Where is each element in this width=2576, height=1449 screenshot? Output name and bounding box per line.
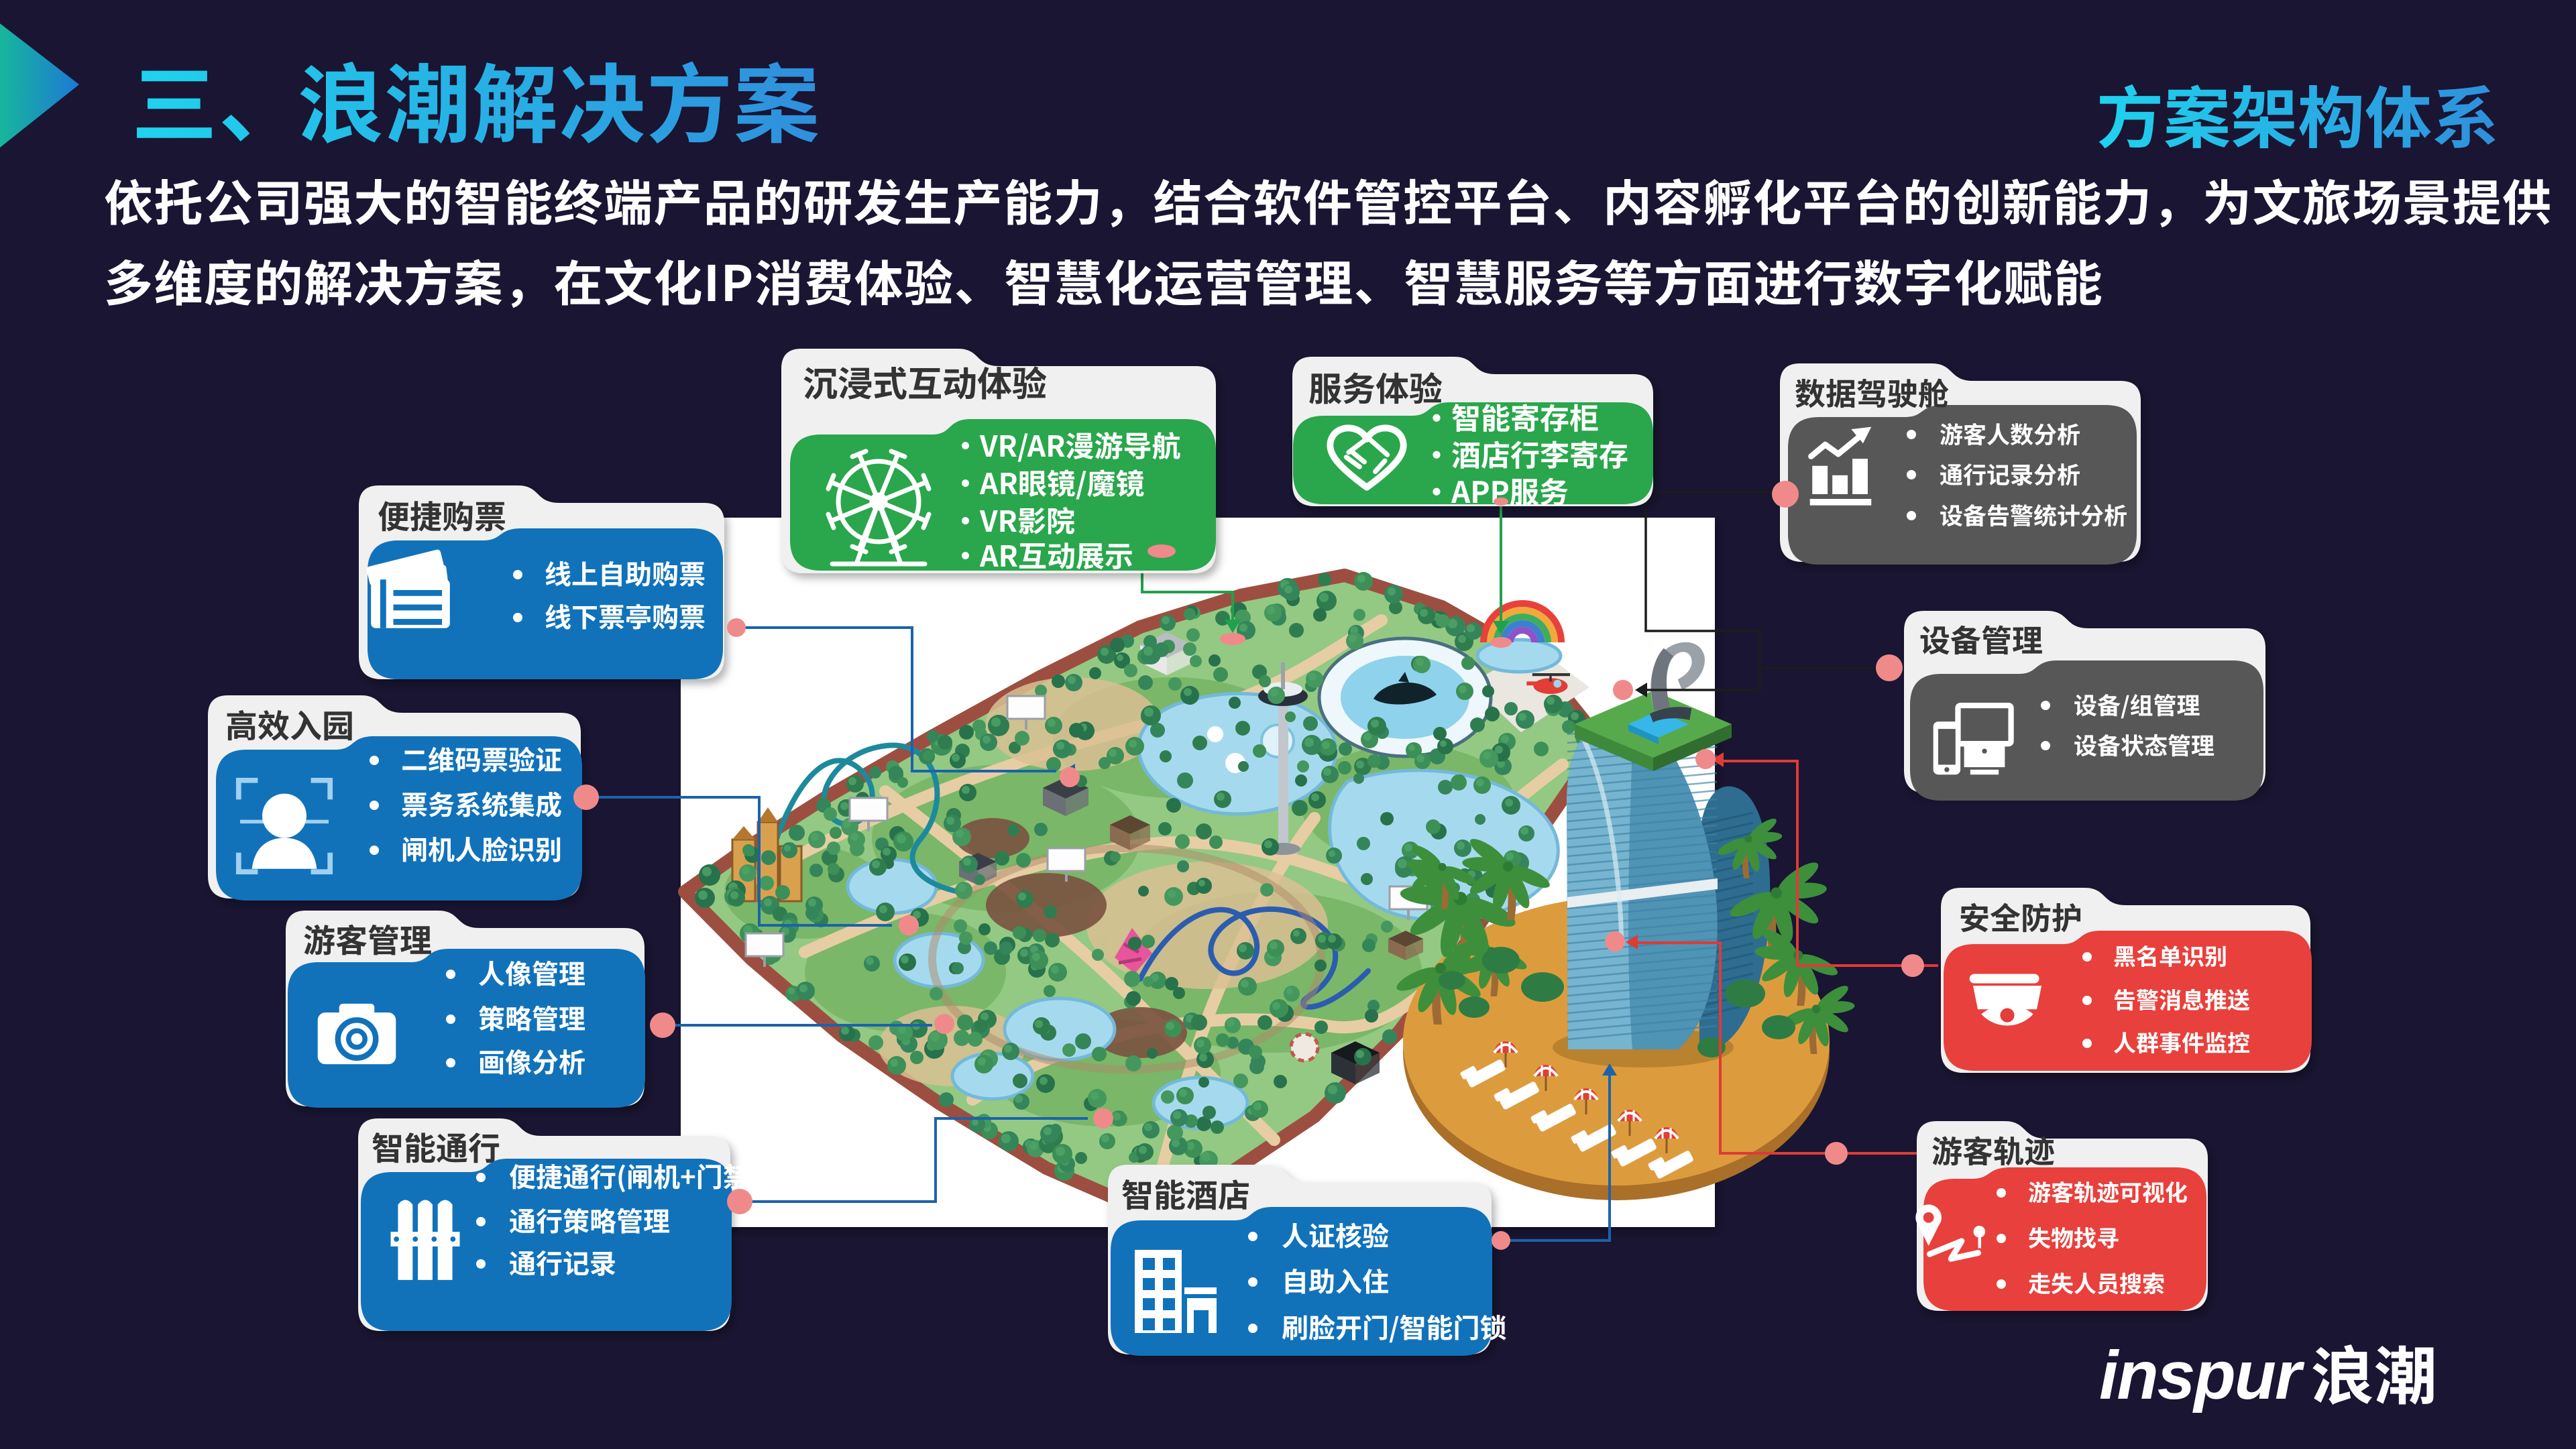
svg-text:线下票亭购票: 线下票亭购票 bbox=[545, 596, 706, 635]
svg-text:人像管理: 人像管理 bbox=[478, 953, 585, 992]
svg-text:沉浸式互动体验: 沉浸式互动体验 bbox=[803, 356, 1047, 406]
svg-text:·APP服务: ·APP服务 bbox=[1422, 469, 1569, 512]
svg-text:刷脸开门/智能门锁: 刷脸开门/智能门锁 bbox=[1282, 1307, 1506, 1346]
svg-text:人群事件监控: 人群事件监控 bbox=[2113, 1025, 2250, 1058]
svg-text:票务系统集成: 票务系统集成 bbox=[401, 784, 562, 823]
svg-text:通行记录: 通行记录 bbox=[509, 1242, 616, 1281]
svg-text:告警消息推送: 告警消息推送 bbox=[2113, 982, 2250, 1015]
svg-text:策略管理: 策略管理 bbox=[478, 998, 585, 1037]
svg-text:便捷购票: 便捷购票 bbox=[378, 491, 506, 538]
svg-text:高效入园: 高效入园 bbox=[225, 700, 354, 747]
svg-text:游客管理: 游客管理 bbox=[303, 915, 432, 962]
svg-text:智能通行: 智能通行 bbox=[372, 1122, 500, 1169]
svg-text:设备告警统计分析: 设备告警统计分析 bbox=[1940, 498, 2127, 532]
svg-text:数据驾驶舱: 数据驾驶舱 bbox=[1795, 370, 1949, 414]
svg-text:画像分析: 画像分析 bbox=[478, 1041, 585, 1080]
svg-text:游客人数分析: 游客人数分析 bbox=[1940, 416, 2080, 451]
svg-text:·AR眼镜/魔镜: ·AR眼镜/魔镜 bbox=[951, 461, 1145, 503]
svg-text:设备管理: 设备管理 bbox=[1919, 617, 2043, 661]
svg-text:黑名单识别: 黑名单识别 bbox=[2113, 939, 2227, 972]
svg-text:设备/组管理: 设备/组管理 bbox=[2074, 687, 2200, 721]
svg-text:二维码票验证: 二维码票验证 bbox=[401, 739, 562, 778]
svg-text:人证核验: 人证核验 bbox=[1282, 1215, 1389, 1254]
svg-text:安全防护: 安全防护 bbox=[1959, 894, 2082, 939]
svg-text:游客轨迹可视化: 游客轨迹可视化 bbox=[2028, 1175, 2188, 1208]
svg-text:闸机人脸识别: 闸机人脸识别 bbox=[401, 829, 562, 868]
svg-text:线上自助购票: 线上自助购票 bbox=[545, 553, 706, 592]
svg-text:失物找寻: 失物找寻 bbox=[2028, 1220, 2119, 1253]
svg-text:自助入住: 自助入住 bbox=[1282, 1261, 1389, 1299]
svg-text:通行记录分析: 通行记录分析 bbox=[1940, 457, 2080, 491]
svg-text:游客轨迹: 游客轨迹 bbox=[1931, 1128, 2055, 1172]
svg-text:设备状态管理: 设备状态管理 bbox=[2074, 728, 2215, 762]
svg-text:智能酒店: 智能酒店 bbox=[1121, 1169, 1250, 1216]
svg-text:·VR/AR漫游导航: ·VR/AR漫游导航 bbox=[951, 424, 1181, 465]
svg-text:便捷通行(闸机+门禁): 便捷通行(闸机+门禁) bbox=[509, 1156, 760, 1195]
svg-text:走失人员搜索: 走失人员搜索 bbox=[2028, 1266, 2165, 1299]
svg-text:通行策略管理: 通行策略管理 bbox=[509, 1200, 670, 1239]
svg-text:·AR互动展示: ·AR互动展示 bbox=[951, 534, 1133, 575]
